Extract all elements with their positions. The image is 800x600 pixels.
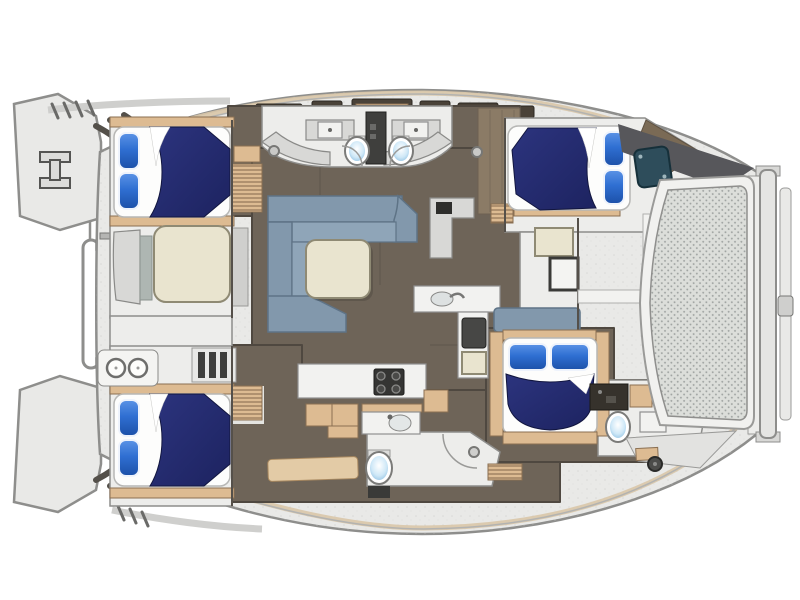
port-mid-corridor — [110, 316, 232, 348]
deck-cleat — [100, 233, 110, 239]
cockpit-mesh-panel — [650, 186, 747, 420]
hull-settee — [268, 456, 359, 481]
dresser — [234, 146, 260, 162]
yacht-floor-plan — [0, 0, 800, 600]
davit-handle — [778, 296, 793, 316]
galley-sink-basin — [462, 318, 486, 348]
toilet — [389, 136, 413, 165]
tambour-locker — [488, 464, 522, 480]
shelf — [630, 385, 652, 407]
galley-counter — [298, 364, 426, 398]
toilet — [345, 136, 369, 165]
pillow — [551, 344, 589, 370]
companionway-steps-port — [491, 204, 513, 223]
cutting-board — [462, 352, 486, 374]
companionway-steps — [192, 348, 236, 382]
pillow — [604, 170, 624, 204]
salon-table — [306, 240, 370, 298]
aft-bench — [494, 308, 580, 332]
pillow — [119, 400, 139, 436]
sink — [431, 292, 453, 306]
pillow — [119, 173, 139, 209]
seat-cushion — [140, 236, 152, 300]
cabinet — [535, 228, 573, 256]
hatch-fitting — [269, 146, 279, 156]
side-panel — [232, 228, 248, 306]
floor-plan-canvas — [0, 0, 800, 600]
tambour-locker — [232, 386, 262, 420]
tambour-locker — [232, 164, 262, 212]
shower-drain — [469, 447, 479, 457]
pillow — [509, 344, 547, 370]
toilet — [366, 450, 392, 484]
chart-plotter — [436, 202, 452, 214]
cooktop — [98, 350, 158, 386]
pillow — [119, 440, 139, 476]
hatch-fitting — [472, 147, 482, 157]
pillow — [119, 133, 139, 169]
berth-duvet — [150, 394, 230, 486]
forward-ottoman — [154, 226, 230, 302]
stove — [374, 369, 404, 395]
pump-unit — [368, 486, 390, 498]
stern-davits — [756, 166, 793, 442]
stairwell — [550, 258, 578, 290]
chaise-seat — [113, 230, 140, 304]
